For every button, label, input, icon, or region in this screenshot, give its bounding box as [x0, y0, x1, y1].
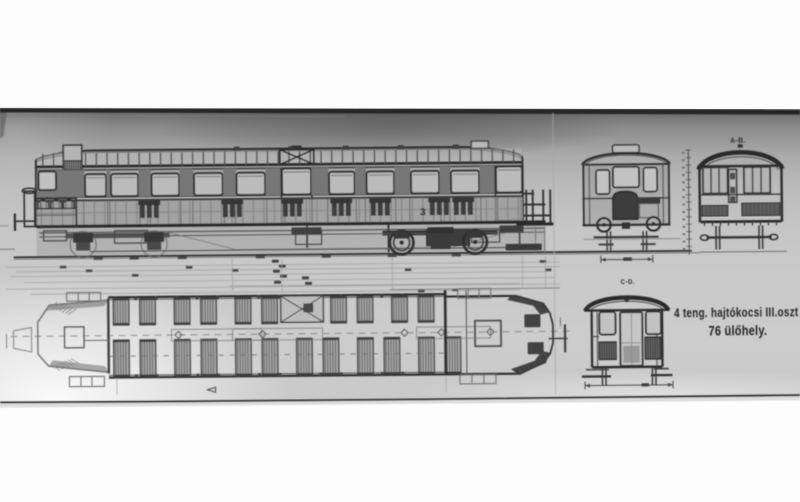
svg-text:A-B.: A-B. [730, 138, 746, 145]
svg-text:76 ülőhely.: 76 ülőhely. [708, 323, 767, 339]
svg-text:C-D.: C-D. [620, 278, 634, 285]
svg-text:4 teng. hajtókocsi III.oszt: 4 teng. hajtókocsi III.oszt [674, 305, 798, 321]
